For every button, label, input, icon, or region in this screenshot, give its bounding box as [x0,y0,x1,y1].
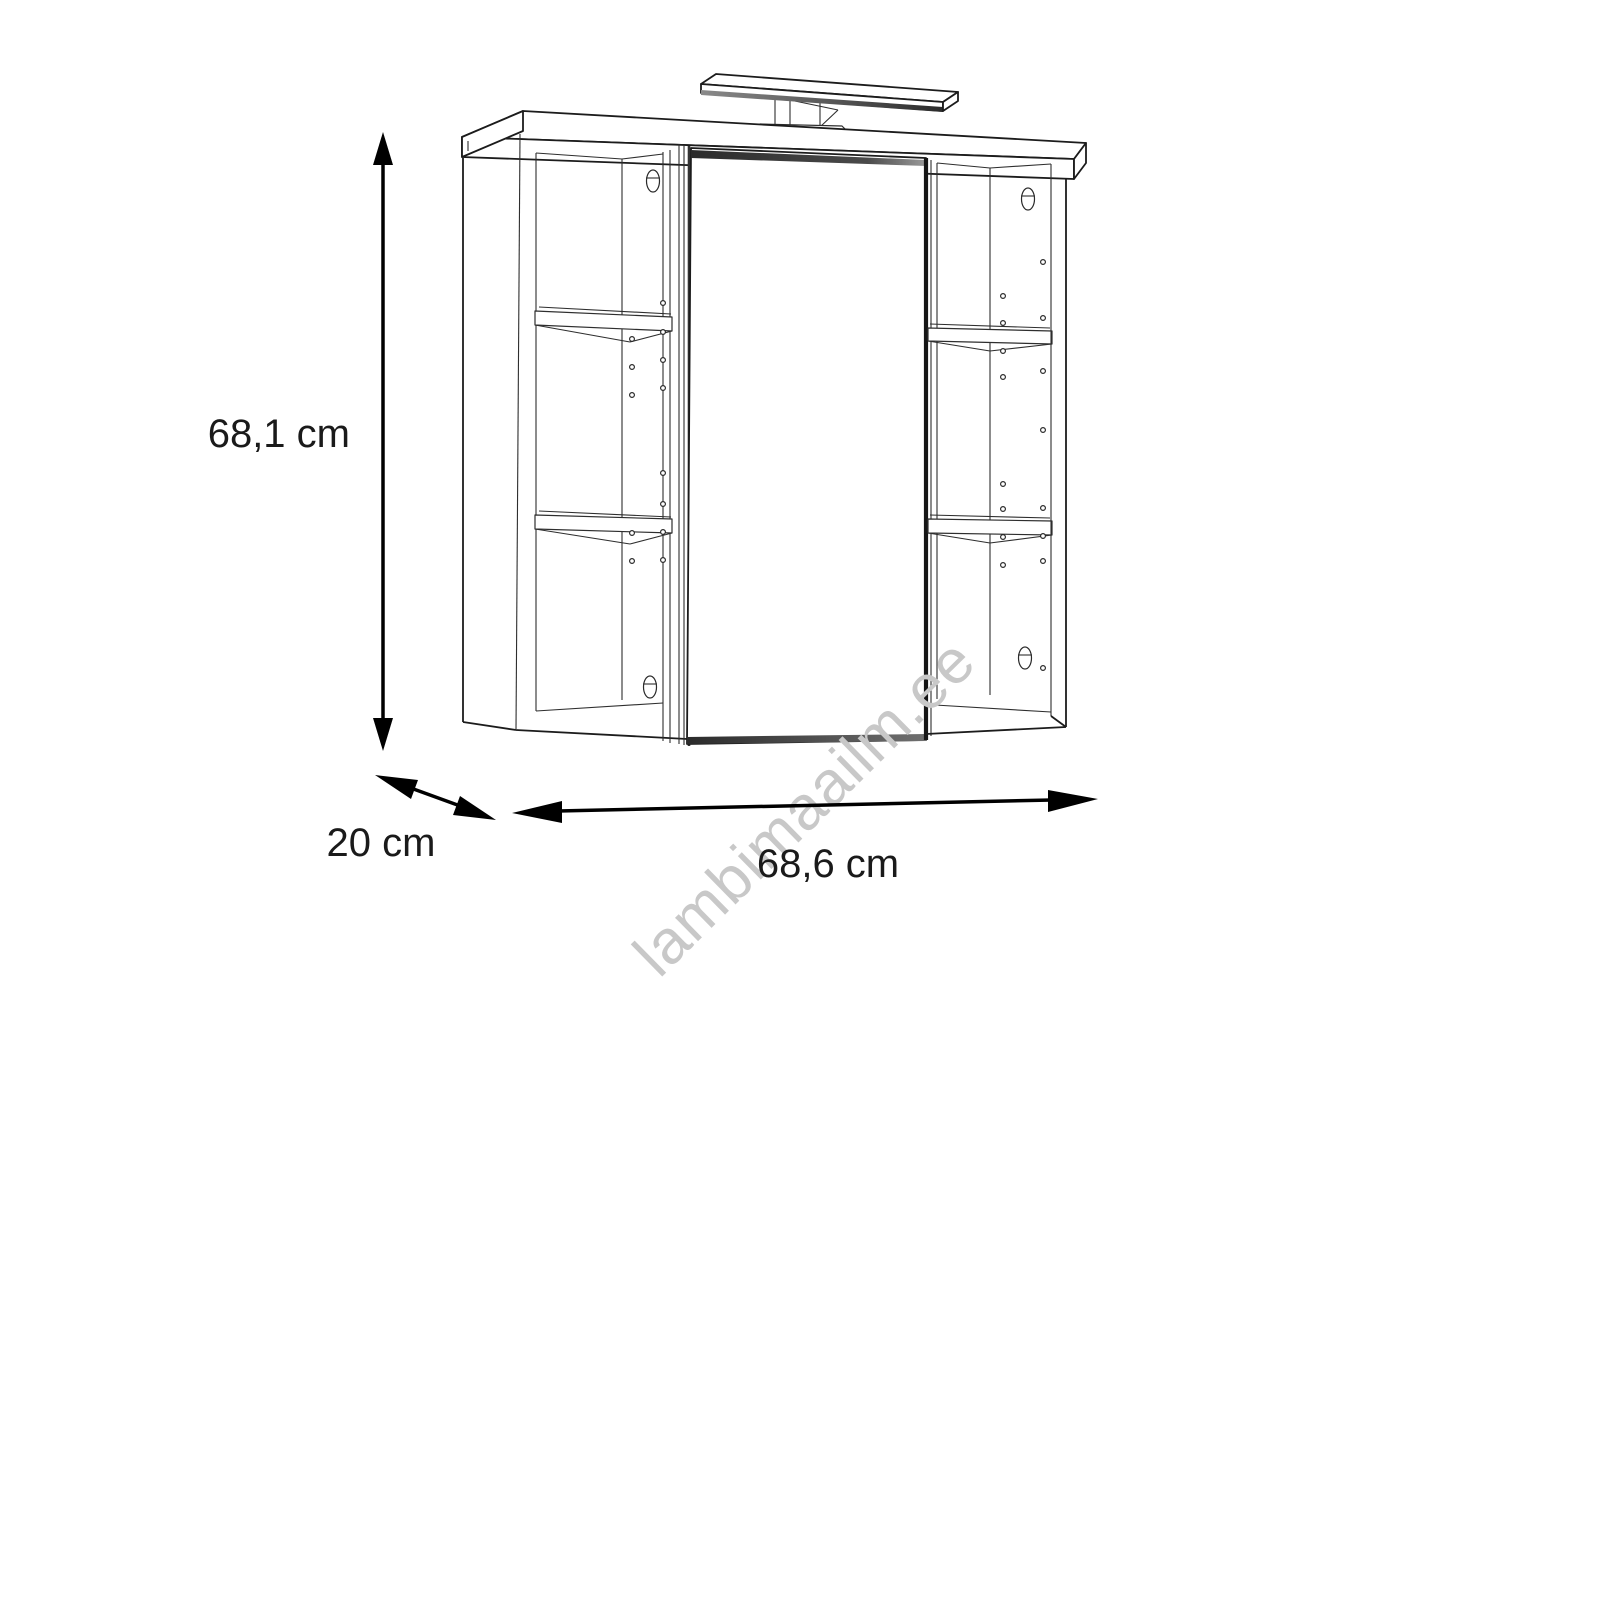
pin-hole [661,386,666,391]
mirror-door [679,144,926,746]
pin-hole [1041,506,1046,511]
pin-hole [1041,534,1046,539]
pin-hole [1001,294,1006,299]
pin-hole [661,502,666,507]
keyhole-mount [643,676,657,698]
door-mirror-face [687,148,926,744]
right-side-panel [1051,164,1066,727]
height-dimension-label: 68,1 cm [208,412,350,456]
depth-dimension-label: 20 cm [327,821,436,865]
keyhole-mount [1018,647,1032,669]
pin-hole [661,330,666,335]
diagram-canvas: lambimaailm.ee 68,1 cm 20 cm 68,6 cm [0,0,1600,1600]
pin-hole [1041,559,1046,564]
pin-hole [630,337,635,342]
pin-hole [1041,666,1046,671]
keyhole-mount [1021,188,1035,210]
pin-hole [661,471,666,476]
pin-hole [661,558,666,563]
pin-hole [1041,260,1046,265]
pin-hole [630,559,635,564]
pin-hole [630,393,635,398]
pin-hole [630,365,635,370]
left-side-panel [463,134,520,730]
arrow-right-icon [1048,790,1098,812]
pin-hole [661,530,666,535]
diagram-page: lambimaailm.ee 68,1 cm 20 cm 68,6 cm [0,0,1600,1600]
pin-hole [630,531,635,536]
pin-hole [1001,535,1006,540]
left-compartment [516,150,687,743]
pin-hole [1001,349,1006,354]
pin-hole [661,358,666,363]
depth-dimension-arrow [375,775,496,820]
width-dimension-label: 68,6 cm [757,842,899,886]
height-dimension-arrow [373,132,393,751]
arrow-left-icon [512,801,562,823]
pin-hole [661,301,666,306]
pin-hole [1001,507,1006,512]
keyhole-mount [646,170,660,192]
shelf [535,511,672,544]
arrow-up-left-icon [375,775,418,799]
pin-hole [1041,316,1046,321]
shelf [535,307,672,342]
lamp-bar [701,74,958,112]
pin-hole [1041,428,1046,433]
dimension-annotations: 68,1 cm 20 cm 68,6 cm [208,132,1098,886]
pin-hole [1001,563,1006,568]
cabinet-drawing [462,74,1086,746]
arrow-down-icon [373,718,393,751]
arrow-up-icon [373,132,393,165]
pin-hole [1041,369,1046,374]
arrow-down-right-icon [453,796,496,820]
pin-hole [1001,375,1006,380]
pin-hole [1001,482,1006,487]
pin-hole [1001,321,1006,326]
